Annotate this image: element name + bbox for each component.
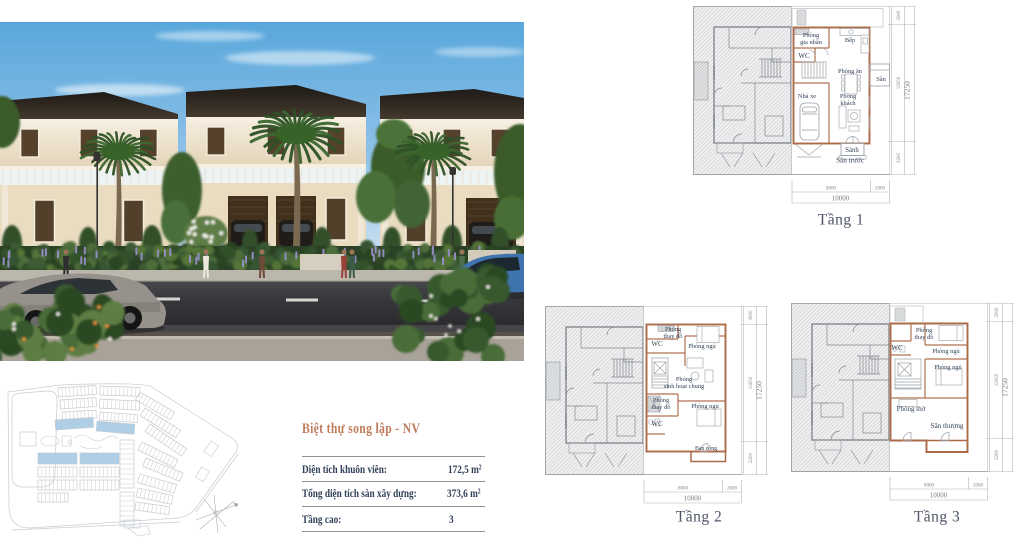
svg-text:17250: 17250: [903, 81, 912, 100]
svg-text:Sân: Sân: [876, 76, 886, 83]
svg-text:3200: 3200: [995, 450, 1000, 461]
svg-text:2000: 2000: [973, 484, 984, 489]
svg-text:Phòng ngủ: Phòng ngủ: [691, 403, 719, 410]
svg-text:Phòngthay đồ: Phòngthay đồ: [652, 397, 671, 411]
svg-text:8000: 8000: [826, 187, 837, 192]
svg-text:12050: 12050: [995, 373, 1000, 386]
svg-text:8000: 8000: [924, 484, 935, 489]
svg-text:WC: WC: [651, 340, 663, 348]
svg-text:WC: WC: [651, 420, 663, 428]
svg-text:Tầng 1: Tầng 1: [818, 212, 864, 229]
svg-text:12050: 12050: [897, 76, 902, 89]
svg-text:17250: 17250: [755, 381, 764, 400]
svg-text:10000: 10000: [684, 495, 702, 503]
svg-text:Bếp: Bếp: [845, 37, 855, 44]
svg-text:WC: WC: [891, 344, 903, 352]
svg-text:8000: 8000: [678, 487, 689, 492]
svg-text:17250: 17250: [1001, 378, 1010, 397]
svg-text:Phòngthay đồ: Phòngthay đồ: [915, 327, 934, 341]
svg-text:Phòngthay đồ: Phòngthay đồ: [664, 326, 683, 340]
svg-text:Sảnh: Sảnh: [845, 147, 859, 154]
svg-text:Phòng ngủ: Phòng ngủ: [688, 343, 716, 350]
svg-text:2000: 2000: [727, 487, 738, 492]
svg-text:Phòng ăn: Phòng ăn: [838, 68, 863, 75]
svg-text:Sân trước: Sân trước: [836, 157, 864, 165]
svg-text:Phòngkhách: Phòngkhách: [840, 93, 857, 107]
svg-text:Sân thượng: Sân thượng: [930, 422, 963, 430]
svg-text:10000: 10000: [832, 195, 850, 203]
svg-text:Ban công: Ban công: [695, 446, 717, 452]
svg-text:Nhà xe: Nhà xe: [798, 93, 816, 100]
svg-text:12050: 12050: [749, 376, 754, 389]
svg-text:WC: WC: [798, 52, 810, 60]
svg-text:Tầng 3: Tầng 3: [914, 509, 960, 526]
svg-text:2000: 2000: [875, 187, 886, 192]
svg-text:Tầng 2: Tầng 2: [676, 509, 722, 526]
svg-text:2000: 2000: [897, 10, 902, 21]
svg-text:3000: 3000: [749, 310, 754, 321]
svg-text:Phòng thờ: Phòng thờ: [897, 405, 926, 413]
svg-text:Phòng ngủ: Phòng ngủ: [934, 364, 962, 371]
svg-text:3200: 3200: [897, 153, 902, 164]
svg-text:2200: 2200: [749, 453, 754, 464]
svg-text:10000: 10000: [930, 492, 948, 500]
svg-text:2000: 2000: [995, 307, 1000, 318]
svg-text:Phòng ngủ: Phòng ngủ: [932, 348, 960, 355]
